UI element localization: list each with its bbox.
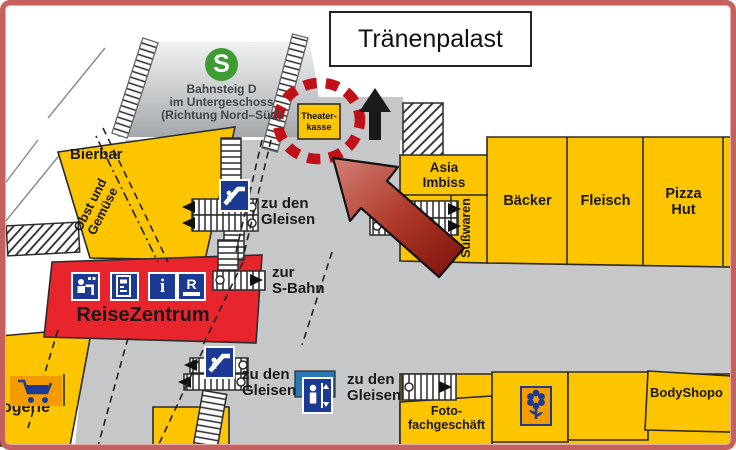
to-sbahn-line1: zur — [272, 265, 325, 281]
hatched-zone-topright — [403, 103, 443, 158]
to-tracks-1-line2: Gleisen — [261, 212, 315, 228]
platform-sign: S Bahnsteig D im Untergeschoss (Richtung… — [118, 48, 325, 122]
to-tracks-3-line2: Gleisen — [347, 388, 401, 404]
to-tracks-3-line1: zu den — [347, 372, 401, 388]
reisezentrum-label: ReiseZentrum — [48, 305, 238, 327]
callout-title: Tränenpalast — [358, 25, 503, 54]
asia-line1: Asia — [401, 161, 487, 176]
theaterkasse-line1: Theater- — [301, 111, 337, 121]
sbahn-logo-icon: S — [205, 48, 238, 81]
to-sbahn-label: zur S-Bahn — [272, 265, 325, 297]
foto-line2: fachgeschäft — [401, 419, 492, 433]
platform-line3: (Richtung Nord–Süd) — [118, 109, 325, 122]
to-tracks-1-line1: zu den — [261, 196, 315, 212]
fleisch-label: Fleisch — [568, 194, 643, 210]
to-tracks-label-3: zu den Gleisen — [347, 372, 401, 404]
to-tracks-label-1: zu den Gleisen — [261, 196, 315, 228]
information-icon: i — [148, 272, 177, 301]
suesswaren-label: Süßwaren — [460, 192, 478, 264]
theaterkasse-line2: kasse — [306, 122, 331, 132]
escalator-icon — [219, 179, 250, 212]
reservation-subtext-bar — [183, 292, 200, 296]
baecker-label: Bäcker — [488, 194, 567, 210]
station-map: S Bahnsteig D im Untergeschoss (Richtung… — [0, 0, 736, 450]
to-sbahn-line2: S-Bahn — [272, 281, 325, 297]
asia-imbiss-label: Asia Imbiss — [401, 161, 487, 190]
information-letter: i — [160, 278, 165, 296]
ticket-machine-icon — [110, 272, 139, 301]
elevator-icon — [302, 377, 333, 414]
asia-line2: Imbiss — [401, 176, 487, 191]
reservation-letter: R — [186, 278, 196, 291]
bierbar-label: Bierbar — [70, 147, 123, 163]
flower-icon — [520, 386, 552, 426]
bodyshop-label: BodyShopo — [650, 386, 723, 400]
to-tracks-2-line1: zu den — [242, 367, 296, 383]
bodyshop-block — [645, 371, 731, 432]
traenenpalast-callout: Tränenpalast — [329, 11, 532, 67]
empty-block — [568, 372, 648, 440]
to-tracks-2-line2: Gleisen — [242, 383, 296, 399]
service-counter-icon — [71, 272, 100, 301]
shopping-cart-icon — [10, 376, 62, 406]
reservation-icon: R — [177, 272, 206, 301]
pizza-hut-label: Pizza Hut — [644, 187, 723, 218]
theaterkasse-label: Theater- kasse — [298, 104, 340, 139]
foto-line1: Foto- — [401, 405, 492, 419]
pizza-line2: Hut — [644, 203, 723, 219]
to-tracks-label-2: zu den Gleisen — [242, 367, 296, 399]
foto-label: Foto- fachgeschäft — [401, 405, 492, 432]
escalator-icon — [204, 346, 235, 379]
pizza-line1: Pizza — [644, 187, 723, 203]
